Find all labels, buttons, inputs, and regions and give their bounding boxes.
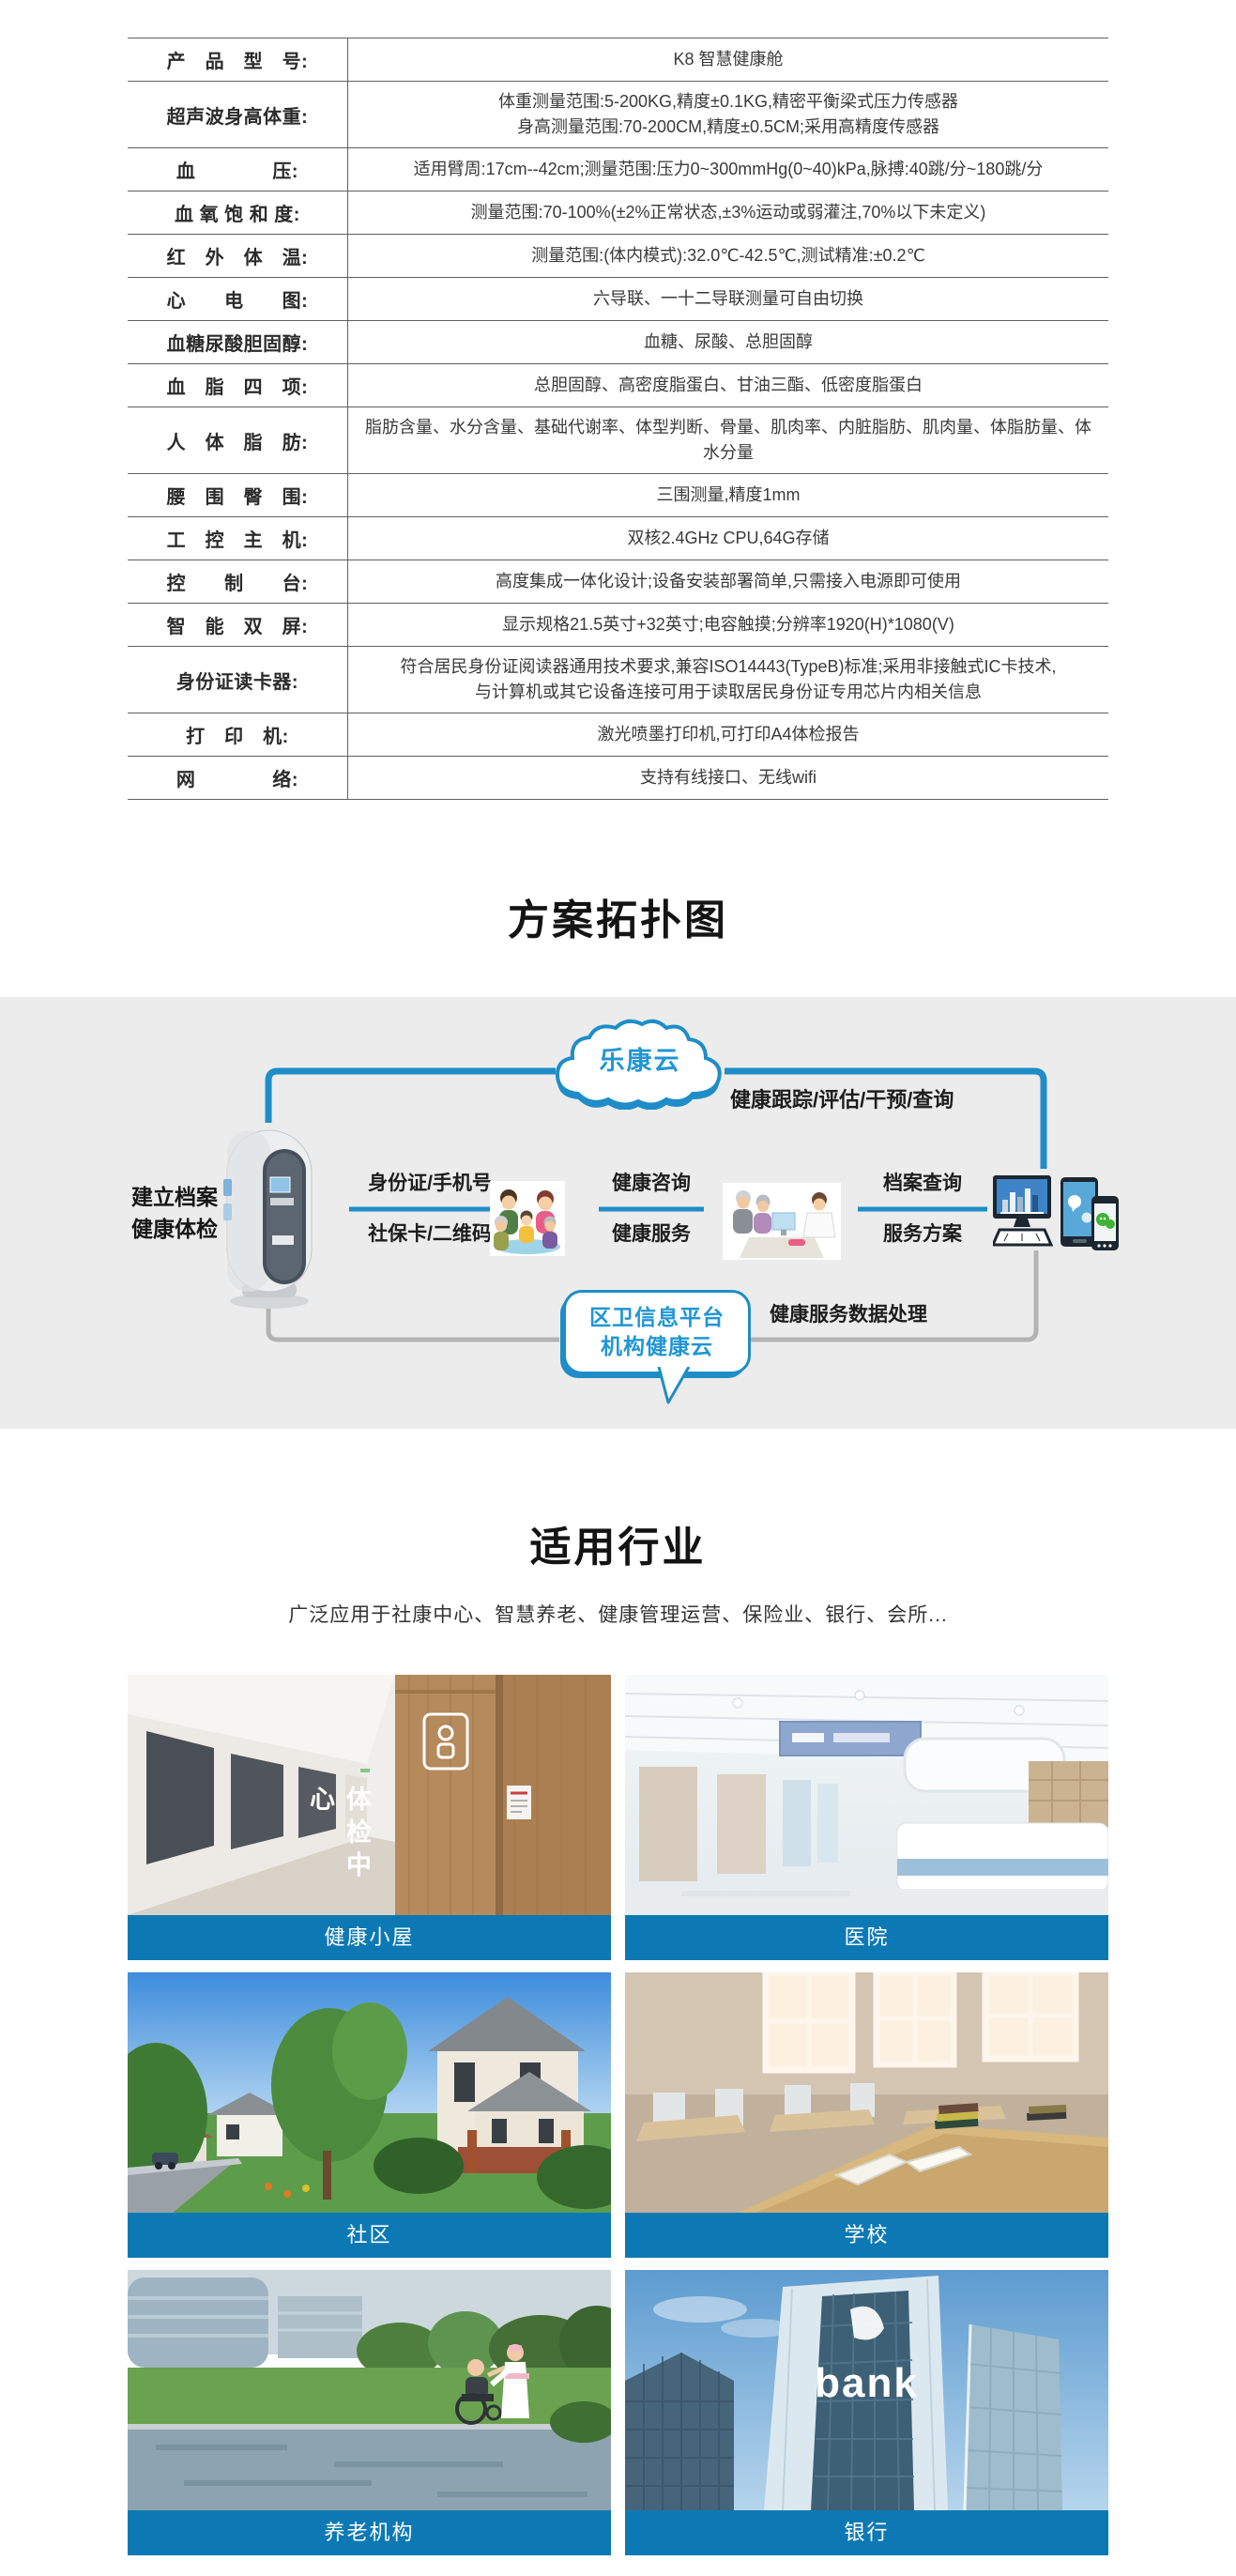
spec-label: 红 外 体 温: [128, 235, 348, 278]
spec-label: 控 制 台: [128, 560, 348, 604]
card-caption: 养老机构 [128, 2510, 611, 2555]
industry-cards: 体检中心 健康小屋 [128, 1675, 1108, 2555]
cloud-label: 乐康云 [550, 1040, 730, 1077]
card-caption: 学校 [625, 2213, 1108, 2258]
family-illustration [490, 1181, 565, 1256]
card-caption: 健康小屋 [128, 1915, 611, 1960]
spec-label: 血糖尿酸胆固醇: [128, 321, 348, 364]
pair2-top-label: 健康咨询 [591, 1170, 711, 1198]
bank-photo: bank [625, 2270, 1108, 2510]
table-row: 心 电 图:六导联、一十二导联测量可自由切换 [128, 278, 1108, 321]
spec-label: 身份证读卡器: [128, 647, 348, 713]
spec-value: 支持有线接口、无线wifi [348, 757, 1109, 800]
table-row: 智 能 双 屏:显示规格21.5英寸+32英寸;电容触摸;分辨率1920(H)*… [128, 604, 1108, 647]
pair3-bottom-label: 服务方案 [850, 1220, 995, 1249]
spec-label: 工 控 主 机: [128, 517, 348, 560]
spec-value: 三围测量,精度1mm [348, 474, 1109, 517]
spec-table: 产 品 型 号:K8 智慧健康舱 超声波身高体重:体重测量范围:5-200KG,… [128, 38, 1108, 800]
table-row: 网 络:支持有线接口、无线wifi [128, 757, 1108, 800]
card-elderly-care: 养老机构 [128, 2270, 611, 2555]
card-hospital: 医院 [625, 1675, 1108, 1960]
card-caption: 医院 [625, 1915, 1108, 1960]
hospital-photo [625, 1675, 1108, 1915]
spec-value: 测量范围:70-100%(±2%正常状态,±3%运动或弱灌注,70%以下未定义) [348, 192, 1109, 235]
spec-value: 血糖、尿酸、总胆固醇 [348, 321, 1109, 364]
spec-value: 双核2.4GHz CPU,64G存储 [348, 517, 1109, 560]
pair3-top-label: 档案查询 [850, 1170, 995, 1198]
table-row: 超声波身高体重:体重测量范围:5-200KG,精度±0.1KG,精密平衡梁式压力… [128, 82, 1108, 148]
spec-label: 超声波身高体重: [128, 82, 348, 148]
health-hut-photo: 体检中心 [128, 1675, 611, 1915]
table-row: 工 控 主 机:双核2.4GHz CPU,64G存储 [128, 517, 1108, 560]
health-pod-icon [214, 1125, 325, 1311]
spec-value: 符合居民身份证阅读器通用技术要求,兼容ISO14443(TypeB)标准;采用非… [348, 647, 1109, 713]
spec-value: 体重测量范围:5-200KG,精度±0.1KG,精密平衡梁式压力传感器 身高测量… [348, 82, 1109, 148]
spec-label: 人 体 脂 肪: [128, 407, 348, 474]
spec-label: 血 脂 四 项: [128, 364, 348, 407]
topology-diagram: 乐康云 健康跟踪/评估/干预/查询 建立档案 健康体检 身份证/手机号 社保卡/… [0, 997, 1236, 1429]
checkup-center-sign: 体检中心 [302, 1786, 375, 1915]
table-row: 产 品 型 号:K8 智慧健康舱 [128, 38, 1108, 82]
community-photo [128, 1972, 611, 2213]
data-processing-label: 健康服务数据处理 [770, 1299, 957, 1327]
spec-value: 激光喷墨打印机,可打印A4体检报告 [348, 713, 1109, 757]
spec-value: 测量范围:(体内模式):32.0℃-42.5℃,测试精准:±0.2℃ [348, 235, 1109, 278]
spec-label: 网 络: [128, 757, 348, 800]
table-row: 血 压:适用臂周:17cm--42cm;测量范围:压力0~300mmHg(0~4… [128, 148, 1108, 192]
card-caption: 银行 [625, 2510, 1108, 2555]
platform-bubble: 区卫信息平台 机构健康云 [563, 1290, 751, 1374]
cloud-caption: 健康跟踪/评估/干预/查询 [730, 1083, 965, 1113]
spec-value: 适用臂周:17cm--42cm;测量范围:压力0~300mmHg(0~40)kP… [348, 148, 1109, 192]
spec-label: 智 能 双 屏: [128, 604, 348, 647]
school-photo [625, 1972, 1108, 2213]
topology-heading: 方案拓扑图 [128, 886, 1108, 946]
elderly-care-photo [128, 2270, 611, 2510]
spec-value: 脂肪含量、水分含量、基础代谢率、体型判断、骨量、肌肉率、内脏脂肪、肌肉量、体脂肪… [348, 407, 1109, 474]
card-caption: 社区 [128, 2213, 611, 2258]
table-row: 血 脂 四 项:总胆固醇、高密度脂蛋白、甘油三酯、低密度脂蛋白 [128, 364, 1108, 407]
card-school: 学校 [625, 1972, 1108, 2258]
spec-label: 腰 围 臀 围: [128, 474, 348, 517]
spec-value: 显示规格21.5英寸+32英寸;电容触摸;分辨率1920(H)*1080(V) [348, 604, 1109, 647]
table-row: 血糖尿酸胆固醇:血糖、尿酸、总胆固醇 [128, 321, 1108, 364]
cloud-node: 乐康云 [550, 1012, 730, 1110]
spec-label: 产 品 型 号: [128, 38, 348, 82]
platform-bubble-label: 区卫信息平台 机构健康云 [589, 1303, 725, 1361]
spec-label: 打 印 机: [128, 713, 348, 757]
terminal-devices-icon [993, 1175, 1121, 1258]
card-bank: bank 银行 [625, 2270, 1108, 2555]
table-row: 控 制 台:高度集成一体化设计;设备安装部署简单,只需接入电源即可使用 [128, 560, 1108, 604]
spec-label: 心 电 图: [128, 278, 348, 321]
consultation-illustration [723, 1183, 841, 1260]
table-row: 腰 围 臀 围:三围测量,精度1mm [128, 474, 1108, 517]
table-row: 人 体 脂 肪:脂肪含量、水分含量、基础代谢率、体型判断、骨量、肌肉率、内脏脂肪… [128, 407, 1108, 474]
bubble-tail [657, 1367, 694, 1408]
spec-value: 六导联、一十二导联测量可自由切换 [348, 278, 1109, 321]
spec-value: K8 智慧健康舱 [348, 38, 1109, 82]
spec-value: 总胆固醇、高密度脂蛋白、甘油三酯、低密度脂蛋白 [348, 364, 1109, 407]
table-row: 打 印 机:激光喷墨打印机,可打印A4体检报告 [128, 713, 1108, 757]
table-row: 红 外 体 温:测量范围:(体内模式):32.0℃-42.5℃,测试精准:±0.… [128, 235, 1108, 278]
spec-label: 血 氧 饱 和 度: [128, 192, 348, 235]
bank-sign: bank [625, 2360, 1108, 2407]
left-note: 建立档案 健康体检 [131, 1181, 218, 1245]
industries-subtitle: 广泛应用于社康中心、智慧养老、健康管理运营、保险业、银行、会所... [128, 1600, 1108, 1628]
table-row: 身份证读卡器:符合居民身份证阅读器通用技术要求,兼容ISO14443(TypeB… [128, 647, 1108, 713]
pair2-bottom-label: 健康服务 [591, 1220, 711, 1249]
spec-value: 高度集成一体化设计;设备安装部署简单,只需接入电源即可使用 [348, 560, 1109, 604]
table-row: 血 氧 饱 和 度:测量范围:70-100%(±2%正常状态,±3%运动或弱灌注… [128, 192, 1108, 235]
spec-label: 血 压: [128, 148, 348, 192]
card-community: 社区 [128, 1972, 611, 2258]
card-health-hut: 体检中心 健康小屋 [128, 1675, 611, 1960]
industries-heading: 适用行业 [128, 1513, 1108, 1573]
